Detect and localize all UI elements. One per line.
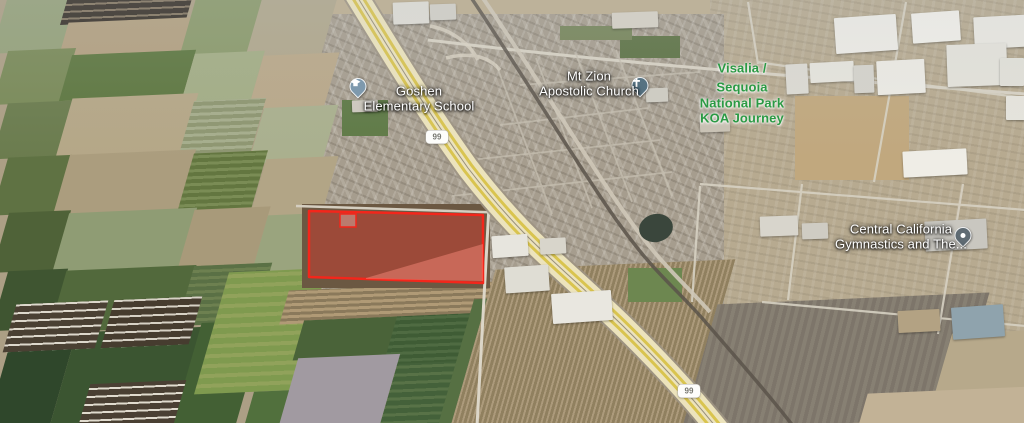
route-99-shield: 99 — [426, 131, 448, 144]
map-label-visalia-sequoia-koa[interactable]: Visalia / Sequoia National Park KOA Jour… — [700, 60, 784, 125]
label-line: Elementary School — [364, 99, 475, 114]
label-line: Goshen — [364, 84, 475, 99]
map-label-mt-zion-apostolic-church[interactable]: Mt Zion Apostolic Church — [539, 69, 639, 100]
label-line: Gymnastics and The... — [835, 237, 967, 252]
label-line: Central California — [835, 222, 967, 237]
label-line: Visalia / — [700, 60, 784, 75]
map-label-goshen-elementary-school[interactable]: Goshen Elementary School — [364, 84, 475, 115]
label-line: Sequoia — [700, 80, 784, 95]
satellite-map[interactable]: Goshen Elementary School Mt Zion Apostol… — [0, 0, 1024, 423]
route-99-shield: 99 — [678, 385, 700, 398]
parcel-inner-building — [340, 214, 356, 227]
label-line: Apostolic Church — [539, 84, 639, 99]
label-line: National Park — [700, 95, 784, 110]
map-label-central-california-gymnastics[interactable]: Central California Gymnastics and The... — [835, 222, 967, 253]
label-line: KOA Journey — [700, 110, 784, 125]
parcel-overlay-layer — [0, 0, 1024, 423]
label-line: Mt Zion — [539, 69, 639, 84]
